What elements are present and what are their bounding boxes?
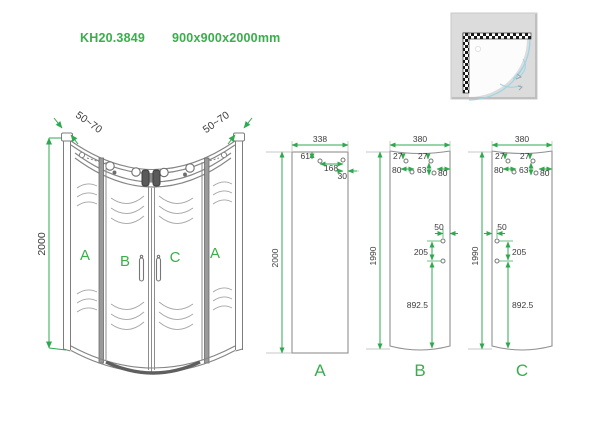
panel-c-edge-offset-right-dim: 80 [540,168,550,178]
dim-height-2000: 2000 [36,138,66,350]
drawing-canvas: KH20.3849 900x900x2000mm [0,0,600,424]
bottom-rail [71,346,235,373]
panel-b-label: B [414,361,425,380]
panel-frames [99,158,209,372]
main-panel-label-door-left: B [120,253,130,270]
panel-b-edge-offset-right-dim: 80 [438,168,448,178]
panel-c-top-offset-left-dim: 27 [495,151,505,161]
panel-c-height-dim: 1990 [470,246,480,265]
panel-detail-views: 338 2000 61 168 30 A 380 1990 [262,118,600,408]
panel-c-edge-offset-left-dim: 80 [494,165,504,175]
panel-b-handle-holes [441,239,445,263]
panel-b-drop-right-dim: 63 [417,165,427,175]
panel-c-drop-right-dim: 63 [519,165,529,175]
main-panel-label-fixed-left: A [80,247,90,264]
panel-a-height-dim: 2000 [270,248,280,267]
panel-a-detail: 338 2000 61 168 30 A [266,134,359,380]
panel-a-hole-top-dim: 61 [301,151,311,161]
panel-a-width-dim: 338 [313,134,327,144]
main-front-view: 2000 50~70 50~70 A B C A [18,98,268,398]
panel-b-height-dim: 1990 [368,246,378,265]
dim-height-2000-label: 2000 [36,232,48,256]
panel-c-handle-bottom-dim: 892.5 [512,300,534,310]
door-handles [140,255,161,281]
panel-b-edge-offset-left-dim: 80 [392,165,402,175]
panel-b-handle-bottom-dim: 892.5 [407,300,429,310]
panel-b-handle-edge-dim: 50 [434,222,444,232]
product-model-code: KH20.3849 [80,31,145,45]
panel-c-handle-spacing-dim: 205 [512,247,526,257]
main-panel-label-door-right: C [170,249,181,266]
panel-c-detail: 380 1990 27 80 27 63 80 50 [468,134,552,380]
panel-a-hole-edge-dim: 30 [338,171,348,181]
panel-c-top-offset-right-dim: 27 [520,151,530,161]
product-dimensions: 900x900x2000mm [172,31,280,45]
panel-b-top-offset-right-dim: 27 [418,151,428,161]
panel-c-handle-holes [495,239,499,263]
panel-b-top-offset-left-dim: 27 [393,151,403,161]
main-panel-label-fixed-right: A [210,245,220,262]
dim-adjust-right-label: 50~70 [201,109,232,136]
dim-adjust-left-label: 50~70 [73,109,104,136]
quadrant-top-view-icon [450,12,538,100]
panel-b-detail: 380 1990 27 80 27 63 80 50 [366,134,458,380]
panel-b-width-dim: 380 [413,134,427,144]
center-door-bracket [142,170,160,186]
right-wall-profile [234,133,245,351]
panel-c-handle-edge-dim: 50 [497,222,507,232]
left-wall-profile [62,133,73,351]
panel-a-label: A [314,361,326,380]
panel-b-handle-spacing-dim: 205 [414,247,428,257]
panel-c-width-dim: 380 [515,134,529,144]
panel-c-label: C [516,361,528,380]
